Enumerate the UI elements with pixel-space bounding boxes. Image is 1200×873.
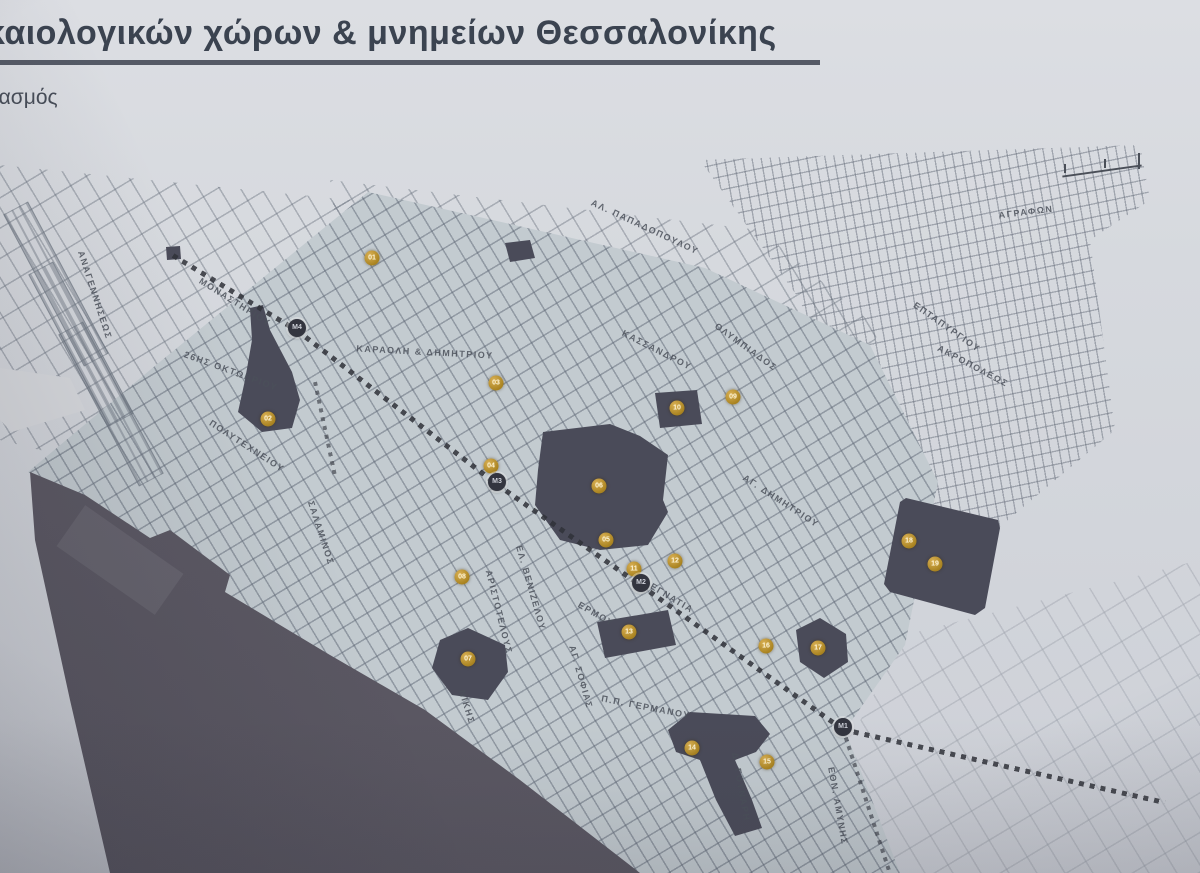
- site-marker-03: 03: [489, 376, 504, 391]
- site-marker-17: 17: [811, 641, 826, 656]
- metro-station-M2: M2: [632, 574, 650, 592]
- site-marker-09: 09: [726, 390, 741, 405]
- street-label-ΚΑΡΑΟΛΗ & ΔΗΜΗΤΡΙΟΥ: ΚΑΡΑΟΛΗ & ΔΗΜΗΤΡΙΟΥ: [356, 343, 494, 360]
- map-annotations-layer: ΑΝΑΓΕΝΝΗΣΕΩΣΜΟΝΑΣΤΗΡΙΟΥ26ΗΣ ΟΚΤΩΒΡΙΟΥΠΟΛ…: [0, 140, 1200, 873]
- street-label-ΚΑΣΣΑΝΔΡΟΥ: ΚΑΣΣΑΝΔΡΟΥ: [620, 328, 693, 372]
- street-label-ΣΑΛΑΜΙΝΟΣ: ΣΑΛΑΜΙΝΟΣ: [306, 500, 336, 567]
- street-label-ΑΡΙΣΤΟΤΕΛΟΥΣ: ΑΡΙΣΤΟΤΕΛΟΥΣ: [484, 569, 515, 655]
- site-marker-12: 12: [668, 554, 683, 569]
- street-label-ΑΝΑΓΕΝΝΗΣΕΩΣ: ΑΝΑΓΕΝΝΗΣΕΩΣ: [76, 249, 114, 340]
- site-marker-19: 19: [928, 557, 943, 572]
- site-marker-14: 14: [685, 741, 700, 756]
- street-label-26ΗΣ ΟΚΤΩΒΡΙΟΥ: 26ΗΣ ΟΚΤΩΒΡΙΟΥ: [183, 349, 280, 392]
- street-label-ΑΓ. ΔΗΜΗΤΡΙΟΥ: ΑΓ. ΔΗΜΗΤΡΙΟΥ: [741, 473, 821, 530]
- street-label-ΑΓ. ΣΟΦΙΑΣ: ΑΓ. ΣΟΦΙΑΣ: [567, 644, 595, 709]
- title-underline: [0, 60, 820, 65]
- site-marker-05: 05: [599, 533, 614, 548]
- street-label-ΕΛ. ΒΕΝΙΖΕΛΟΥ: ΕΛ. ΒΕΝΙΖΕΛΟΥ: [514, 544, 548, 631]
- street-label-ΕΓΝΑΤΙΑ: ΕΓΝΑΤΙΑ: [649, 581, 696, 615]
- site-marker-01: 01: [365, 251, 380, 266]
- street-label-ΕΡΜΟΥ: ΕΡΜΟΥ: [576, 600, 615, 629]
- street-label-ΜΟΝΑΣΤΗΡΙΟΥ: ΜΟΝΑΣΤΗΡΙΟΥ: [197, 276, 272, 328]
- street-label-Δ. ΓΟΥΝΑΡΗ: Δ. ΓΟΥΝΑΡΗ: [730, 752, 752, 823]
- street-label-ΝΙΚΗΣ: ΝΙΚΗΣ: [457, 689, 477, 725]
- site-marker-07: 07: [461, 652, 476, 667]
- site-marker-18: 18: [902, 534, 917, 549]
- site-marker-15: 15: [760, 755, 775, 770]
- street-label-ΑΛ. ΠΑΠΑΔΟΠΟΥΛΟΥ: ΑΛ. ΠΑΠΑΔΟΠΟΥΛΟΥ: [590, 198, 701, 257]
- thessaloniki-map: ΑΝΑΓΕΝΝΗΣΕΩΣΜΟΝΑΣΤΗΡΙΟΥ26ΗΣ ΟΚΤΩΒΡΙΟΥΠΟΛ…: [0, 140, 1200, 873]
- metro-station-M4: M4: [288, 319, 306, 337]
- site-marker-13: 13: [622, 625, 637, 640]
- metro-station-M1: M1: [834, 718, 852, 736]
- site-marker-08: 08: [455, 570, 470, 585]
- street-label-ΕΘΝ. ΑΜΥΝΗΣ: ΕΘΝ. ΑΜΥΝΗΣ: [826, 766, 850, 846]
- street-label-ΟΛΥΜΠΙΑΔΟΣ: ΟΛΥΜΠΙΑΔΟΣ: [713, 321, 779, 373]
- site-marker-10: 10: [670, 401, 685, 416]
- site-marker-02: 02: [261, 412, 276, 427]
- site-marker-16: 16: [759, 639, 774, 654]
- street-label-Π.Π. ΓΕΡΜΑΝΟΥ: Π.Π. ΓΕΡΜΑΝΟΥ: [601, 693, 692, 720]
- slide-photo: καιολογικών χώρων & μνημείων Θεσσαλονίκη…: [0, 0, 1200, 873]
- site-marker-04: 04: [484, 459, 499, 474]
- slide-subtitle: ιασμός: [0, 86, 58, 110]
- street-label-ΑΓΡΑΦΩΝ: ΑΓΡΑΦΩΝ: [998, 204, 1054, 221]
- street-label-ΠΟΛΥΤΕΧΝΕΙΟΥ: ΠΟΛΥΤΕΧΝΕΙΟΥ: [207, 418, 286, 474]
- site-marker-06: 06: [592, 479, 607, 494]
- slide-title: καιολογικών χώρων & μνημείων Θεσσαλονίκη…: [0, 14, 886, 53]
- metro-station-M3: M3: [488, 473, 506, 491]
